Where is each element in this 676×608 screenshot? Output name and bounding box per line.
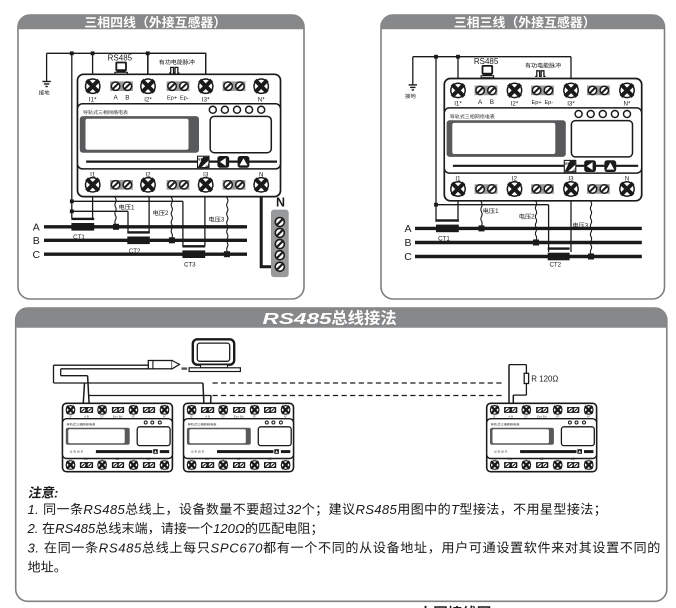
- svg-text:A: A: [404, 223, 411, 235]
- svg-text:CT3: CT3: [184, 262, 196, 269]
- svg-text:N*: N*: [258, 97, 265, 104]
- svg-text:T: T: [451, 502, 460, 517]
- svg-text:A B: A B: [205, 414, 210, 418]
- svg-text:RS485: RS485: [99, 540, 142, 555]
- svg-text:RS485: RS485: [355, 502, 397, 517]
- svg-text:2: 2: [531, 214, 535, 221]
- svg-text:Ep-: Ep-: [544, 100, 553, 106]
- svg-text:CT2: CT2: [129, 248, 141, 255]
- svg-text:N: N: [259, 171, 263, 178]
- svg-text:N: N: [276, 196, 285, 210]
- svg-text:SPC670: SPC670: [211, 540, 264, 555]
- svg-text:A: A: [33, 221, 40, 233]
- svg-text:CT1: CT1: [438, 236, 450, 243]
- svg-text:3.: 3.: [28, 540, 44, 555]
- svg-text:L3: L3: [571, 457, 575, 461]
- svg-text::: :: [54, 485, 58, 500]
- svg-text:Ep+ Ep-: Ep+ Ep-: [113, 414, 123, 418]
- svg-text:A B: A B: [84, 414, 89, 418]
- svg-text:C: C: [404, 251, 412, 263]
- svg-text:Ep-: Ep-: [180, 96, 189, 102]
- svg-text:I2: I2: [512, 176, 518, 183]
- svg-text:2.: 2.: [27, 521, 43, 536]
- svg-text:L3: L3: [268, 457, 272, 461]
- svg-text:120Ω: 120Ω: [213, 521, 245, 536]
- svg-text:32: 32: [286, 502, 302, 517]
- svg-text:A: A: [478, 99, 483, 106]
- svg-text:I3*: I3*: [202, 97, 210, 104]
- svg-text:B: B: [125, 95, 129, 102]
- svg-text:I1: I1: [90, 171, 96, 178]
- svg-text:C: C: [33, 249, 41, 261]
- svg-text:I2*: I2*: [511, 101, 519, 108]
- svg-text:L2: L2: [237, 457, 241, 461]
- svg-text:RS485: RS485: [474, 57, 499, 66]
- svg-text:L2: L2: [540, 457, 544, 461]
- svg-text:1: 1: [131, 204, 135, 211]
- svg-text:B: B: [490, 99, 494, 106]
- svg-text:CT1: CT1: [73, 234, 85, 241]
- svg-text:RS485: RS485: [263, 311, 333, 329]
- svg-text:N: N: [625, 176, 629, 183]
- svg-text:I3: I3: [568, 176, 574, 183]
- svg-text:R 120Ω: R 120Ω: [531, 374, 558, 383]
- svg-text:CT2: CT2: [549, 262, 561, 269]
- svg-text:B: B: [33, 235, 40, 247]
- svg-text:Ep+: Ep+: [167, 96, 177, 102]
- svg-text:3: 3: [221, 217, 225, 224]
- svg-text:B: B: [404, 237, 411, 249]
- svg-text:I1*: I1*: [454, 101, 462, 108]
- svg-text:I1: I1: [455, 176, 461, 183]
- svg-text:I1*: I1*: [89, 97, 97, 104]
- svg-text:L2: L2: [116, 457, 120, 461]
- svg-text:RS485: RS485: [108, 53, 133, 62]
- svg-text:Ep+ Ep-: Ep+ Ep-: [537, 414, 547, 418]
- svg-text:L1: L1: [205, 457, 209, 461]
- svg-text:1: 1: [495, 208, 499, 215]
- svg-text:EP: EP: [198, 158, 203, 162]
- svg-text:2: 2: [165, 210, 169, 217]
- svg-text:A: A: [113, 95, 118, 102]
- svg-text:RS485: RS485: [55, 521, 96, 536]
- svg-text:EP: EP: [565, 162, 570, 166]
- svg-text:RS485: RS485: [83, 502, 125, 517]
- svg-text:I2: I2: [145, 171, 151, 178]
- svg-text:L1: L1: [508, 457, 512, 461]
- svg-text:L3: L3: [147, 457, 151, 461]
- svg-text:I3: I3: [203, 171, 209, 178]
- svg-text:I3*: I3*: [567, 101, 575, 108]
- svg-text:L1: L1: [84, 457, 88, 461]
- svg-text:Ep+: Ep+: [532, 100, 542, 106]
- svg-text:A B: A B: [508, 414, 513, 418]
- svg-text:1.: 1.: [28, 502, 44, 517]
- svg-text:I2*: I2*: [144, 97, 152, 104]
- svg-text:Ep+ Ep-: Ep+ Ep-: [234, 414, 244, 418]
- svg-text:N*: N*: [624, 101, 631, 108]
